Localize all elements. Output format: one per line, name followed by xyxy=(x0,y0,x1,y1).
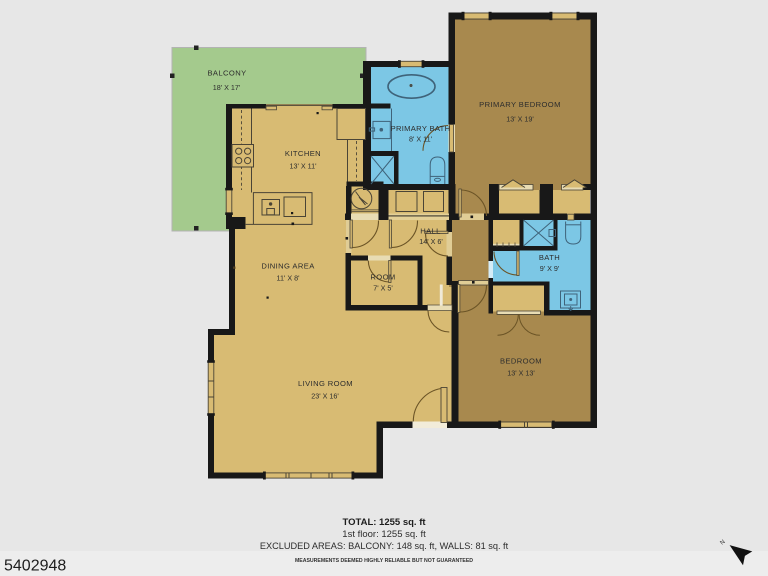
svg-text:LIVING ROOM: LIVING ROOM xyxy=(298,379,353,388)
svg-text:13' X 19': 13' X 19' xyxy=(506,115,534,124)
svg-text:7' X 5': 7' X 5' xyxy=(373,284,393,293)
svg-text:TOTAL: 1255 sq. ft: TOTAL: 1255 sq. ft xyxy=(342,517,426,528)
svg-text:PRIMARY BATH: PRIMARY BATH xyxy=(391,124,451,133)
svg-text:5402948: 5402948 xyxy=(4,558,66,575)
svg-text:BEDROOM: BEDROOM xyxy=(500,357,542,366)
svg-text:14' X 6': 14' X 6' xyxy=(419,237,443,246)
svg-text:BALCONY: BALCONY xyxy=(207,69,246,78)
svg-text:1st floor: 1255 sq. ft: 1st floor: 1255 sq. ft xyxy=(342,529,426,540)
svg-text:18' X 17': 18' X 17' xyxy=(213,83,241,92)
svg-text:DINING AREA: DINING AREA xyxy=(261,262,315,271)
svg-text:MEASUREMENTS DEEMED HIGHLY REL: MEASUREMENTS DEEMED HIGHLY RELIABLE BUT … xyxy=(295,558,473,564)
svg-text:HALL: HALL xyxy=(420,227,441,236)
svg-text:KITCHEN: KITCHEN xyxy=(285,149,321,158)
svg-text:8' X 11': 8' X 11' xyxy=(409,135,433,144)
svg-text:BATH: BATH xyxy=(539,253,560,262)
svg-text:13' X 13': 13' X 13' xyxy=(507,369,535,378)
svg-text:13' X 11': 13' X 11' xyxy=(290,162,318,171)
svg-text:11' X 8': 11' X 8' xyxy=(277,274,301,283)
svg-text:9' X 9': 9' X 9' xyxy=(540,264,560,273)
svg-text:ROOM: ROOM xyxy=(370,273,395,282)
svg-text:23' X 16': 23' X 16' xyxy=(311,392,339,401)
svg-text:EXCLUDED AREAS: BALCONY: 148 s: EXCLUDED AREAS: BALCONY: 148 sq. ft, WAL… xyxy=(260,541,509,551)
svg-text:PRIMARY BEDROOM: PRIMARY BEDROOM xyxy=(479,100,561,109)
